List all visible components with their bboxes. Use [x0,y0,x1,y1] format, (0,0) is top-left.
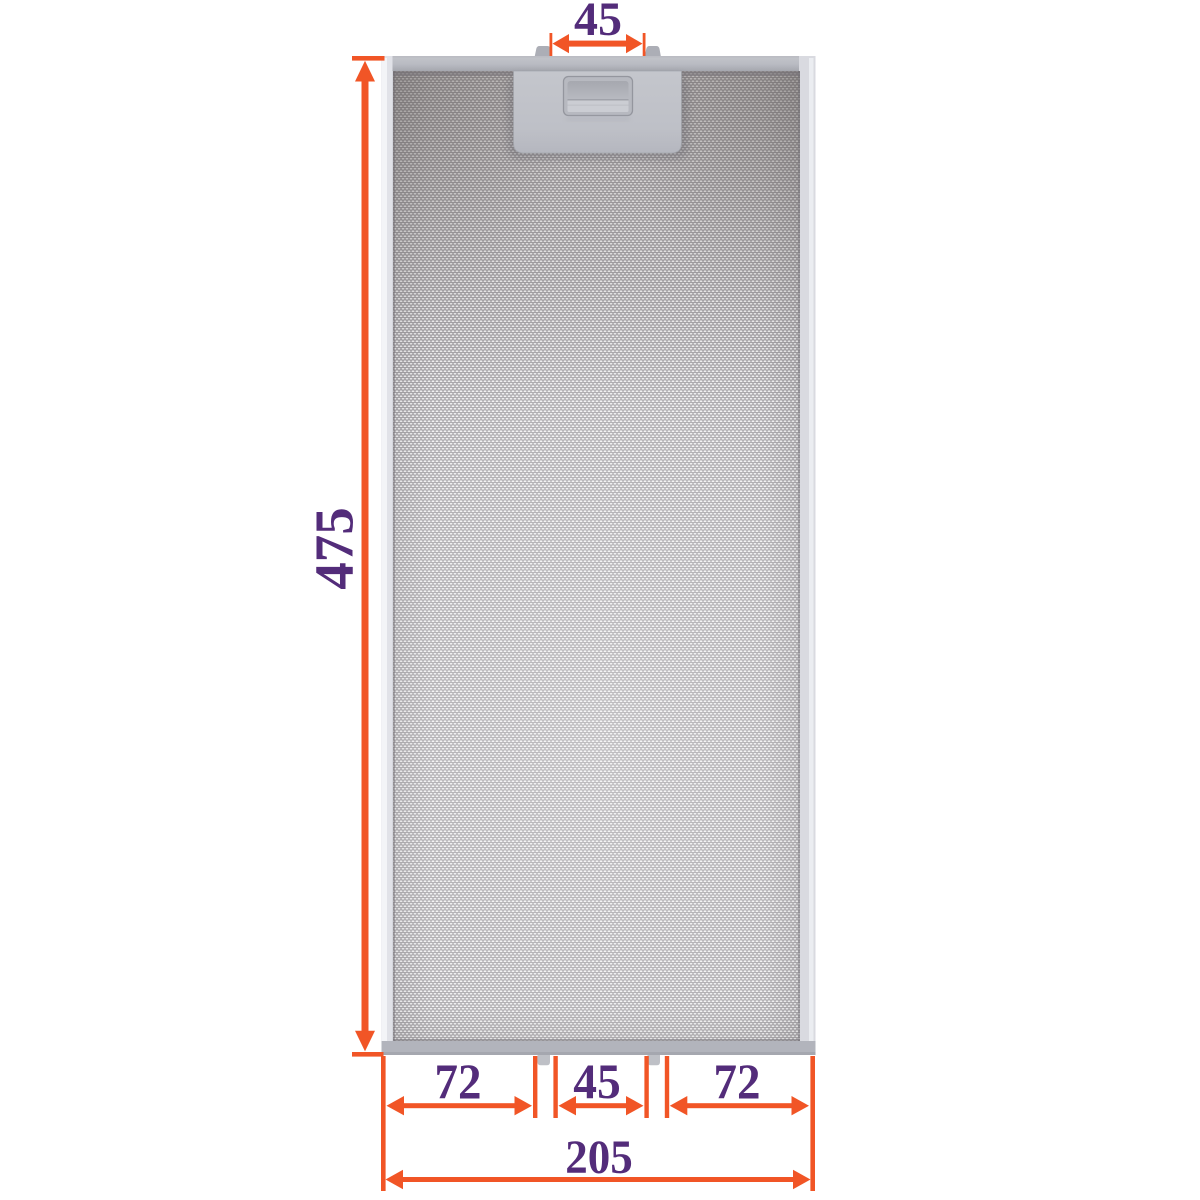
svg-text:72: 72 [714,1053,761,1109]
svg-text:45: 45 [573,1053,621,1109]
svg-text:475: 475 [304,507,365,590]
svg-text:45: 45 [574,0,622,46]
svg-text:205: 205 [565,1131,633,1184]
svg-text:72: 72 [435,1053,482,1109]
